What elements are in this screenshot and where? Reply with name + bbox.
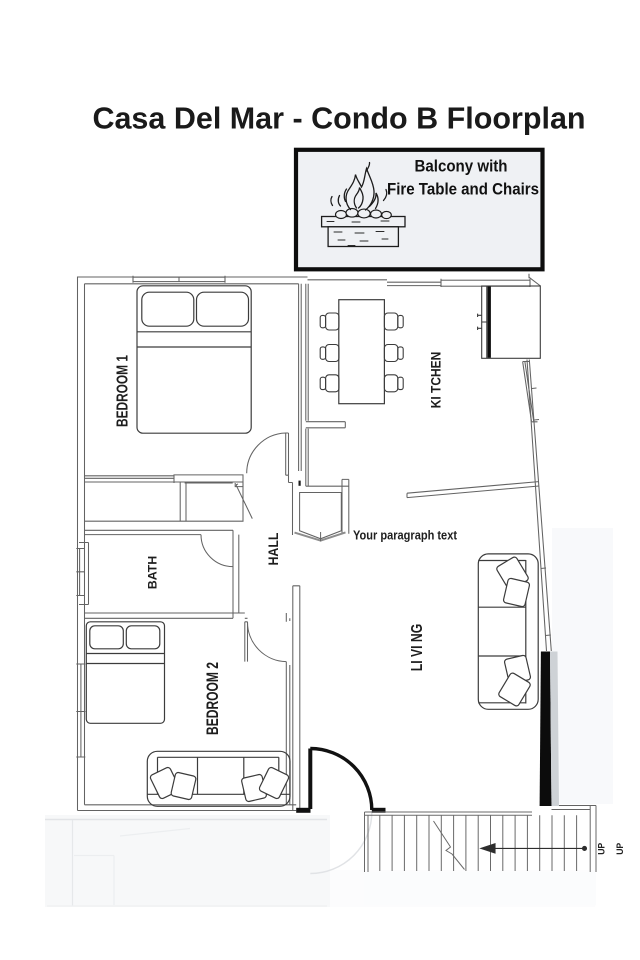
svg-text:KI TCHEN: KI TCHEN xyxy=(427,352,443,409)
svg-text:BEDROOM 1: BEDROOM 1 xyxy=(114,355,131,427)
svg-text:BEDROOM 2: BEDROOM 2 xyxy=(204,662,222,735)
svg-text:Fire Table and Chairs: Fire Table and Chairs xyxy=(387,180,539,199)
svg-text:Your paragraph text: Your paragraph text xyxy=(353,528,458,543)
svg-text:Casa Del Mar - Condo B Floorpl: Casa Del Mar - Condo B Floorplan xyxy=(92,102,585,136)
svg-text:UP: UP xyxy=(596,842,607,855)
svg-text:UP: UP xyxy=(615,842,626,855)
svg-text:BATH: BATH xyxy=(147,556,159,590)
svg-text:LI VI NG: LI VI NG xyxy=(409,624,426,672)
svg-text:Balcony with: Balcony with xyxy=(415,157,508,176)
svg-text:HALL: HALL xyxy=(266,533,281,566)
